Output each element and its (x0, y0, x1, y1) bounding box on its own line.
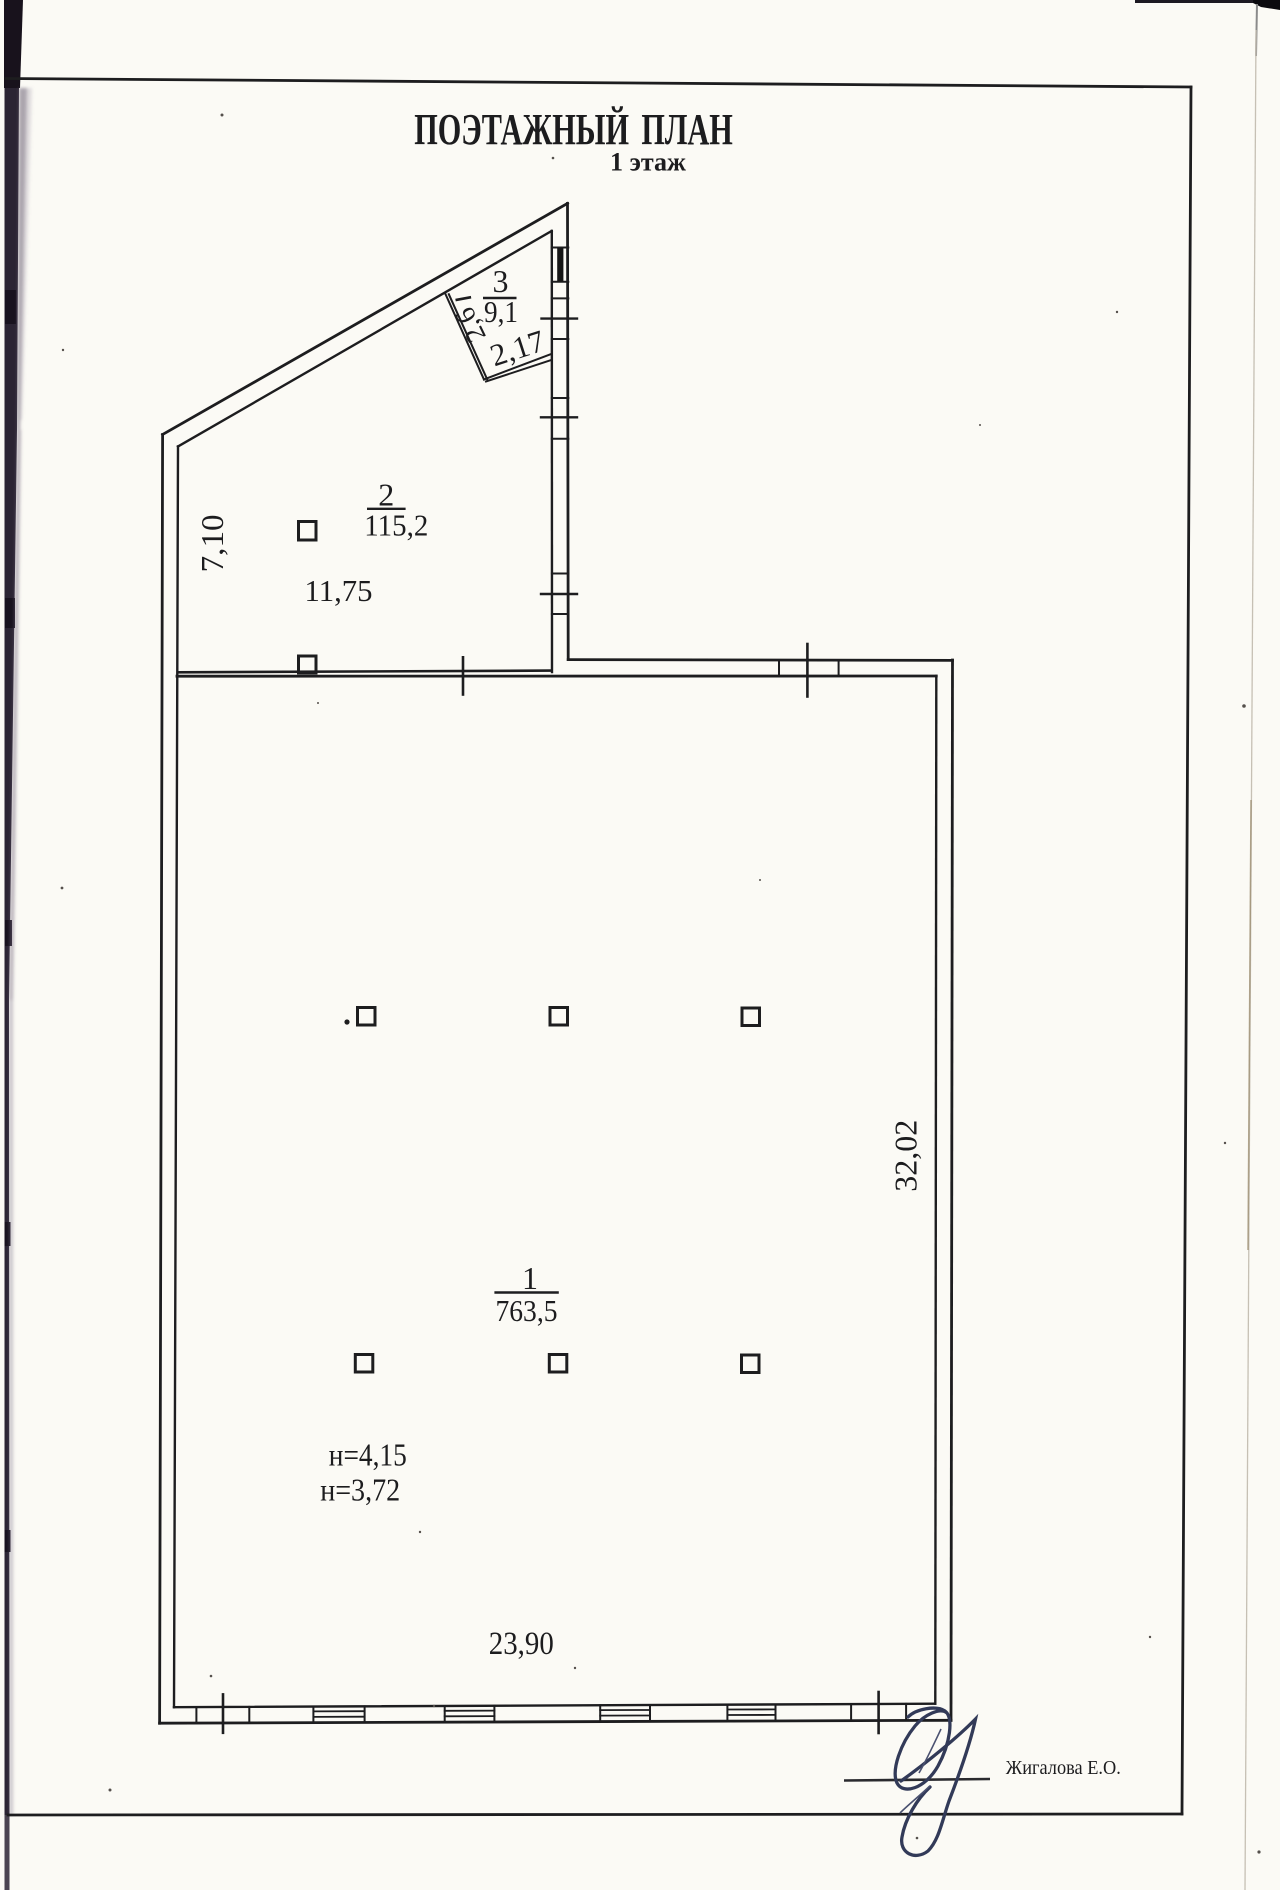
svg-text:н=4,15: н=4,15 (329, 1437, 407, 1473)
svg-text:1 этаж: 1 этаж (610, 148, 686, 177)
svg-text:7,10: 7,10 (194, 514, 230, 572)
svg-text:11,75: 11,75 (305, 573, 373, 608)
svg-text:23,90: 23,90 (489, 1626, 554, 1662)
svg-text:2,17: 2,17 (486, 323, 549, 373)
svg-text:115,2: 115,2 (364, 508, 428, 543)
svg-text:Жигалова Е.О.: Жигалова Е.О. (1006, 1757, 1121, 1779)
svg-text:763,5: 763,5 (496, 1293, 558, 1328)
svg-text:32,02: 32,02 (887, 1120, 923, 1192)
svg-text:9,1: 9,1 (484, 294, 518, 329)
svg-text:1: 1 (522, 1260, 538, 1296)
svg-text:н=3,72: н=3,72 (320, 1472, 400, 1508)
